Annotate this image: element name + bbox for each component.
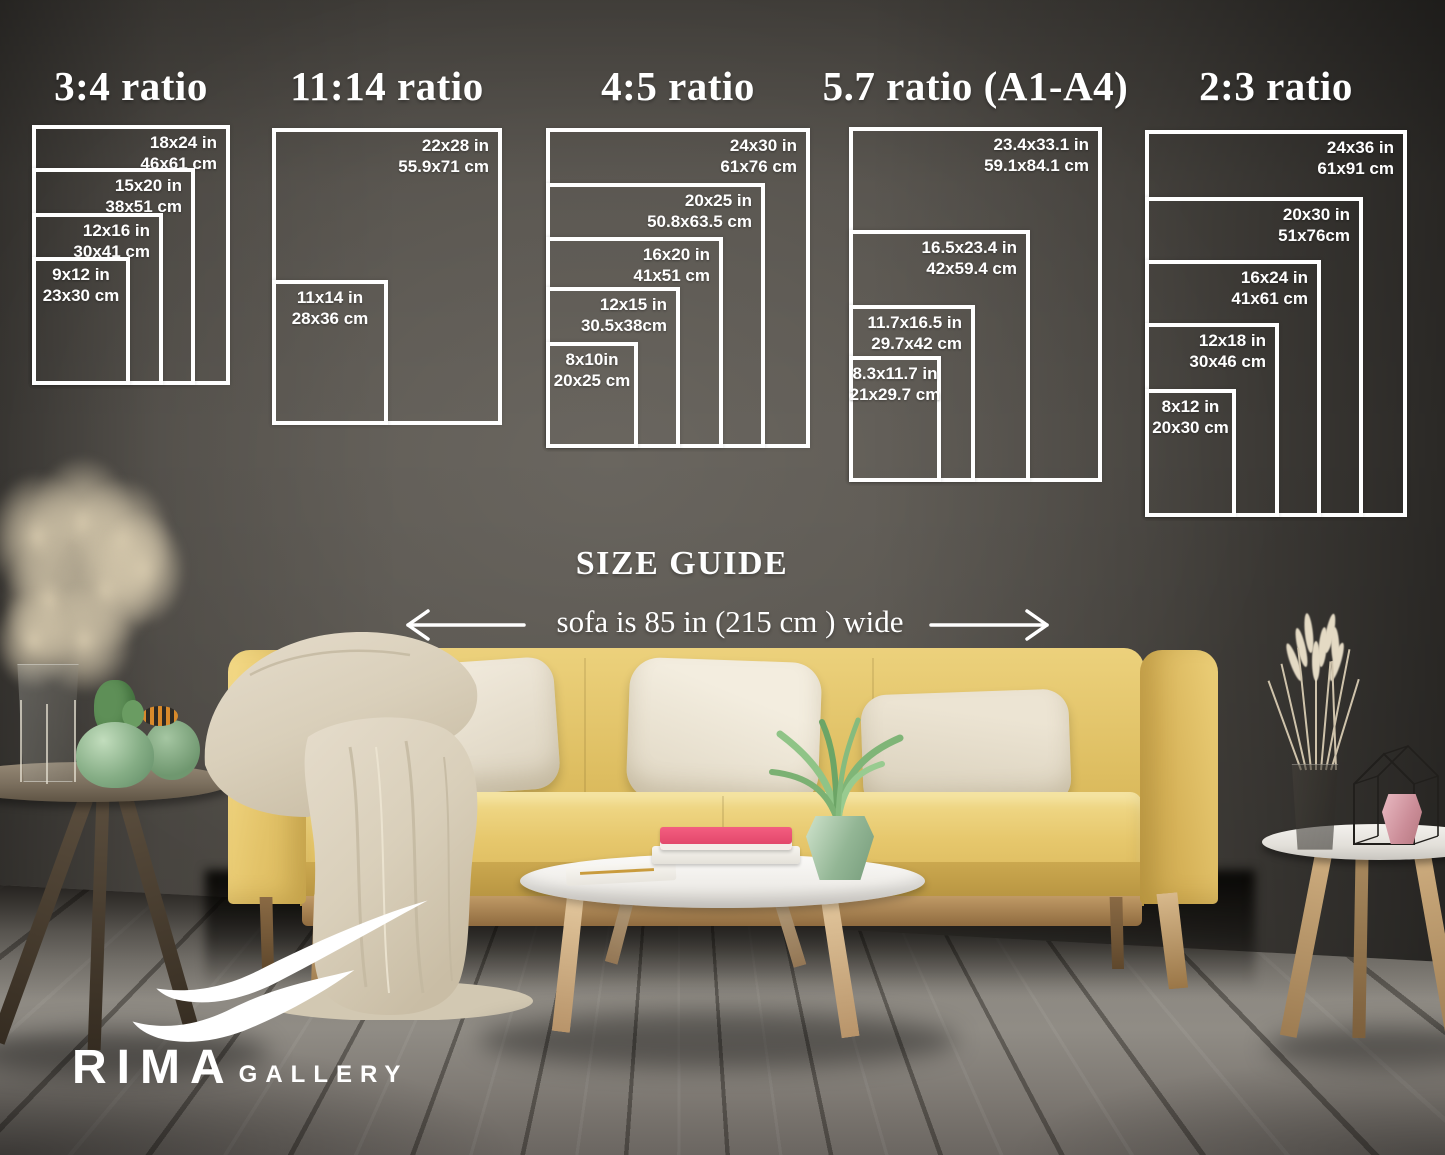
rima-swoosh-icon xyxy=(95,895,445,1060)
arrow-left-icon xyxy=(402,607,527,643)
size-label: 20x25 in50.8x63.5 cm xyxy=(647,190,752,232)
size-label: 8x12 in20x30 cm xyxy=(1152,396,1229,438)
size-rect: 9x12 in23x30 cm xyxy=(32,257,130,385)
size-label: 12x16 in30x41 cm xyxy=(73,220,150,262)
logo-suffix-text: GALLERY xyxy=(239,1063,409,1087)
size-rect: 11x14 in28x36 cm xyxy=(272,280,388,425)
size-label: 11x14 in28x36 cm xyxy=(292,287,369,329)
size-label: 16x24 in41x61 cm xyxy=(1231,267,1308,309)
size-label: 12x18 in30x46 cm xyxy=(1189,330,1266,372)
size-label: 16x20 in41x51 cm xyxy=(633,244,710,286)
size-rect: 8.3x11.7 in21x29.7 cm xyxy=(849,356,941,482)
size-guide-poster: 18x24 in46x61 cm15x20 in38x51 cm12x16 in… xyxy=(0,0,1445,1155)
size-group-ratio-5-7: 23.4x33.1 in59.1x84.1 cm16.5x23.4 in42x5… xyxy=(849,127,1102,482)
size-group-title: 5.7 ratio (A1-A4) xyxy=(823,62,1129,110)
sofa-width-note: sofa is 85 in (215 cm ) wide xyxy=(557,604,904,640)
size-group-title: 2:3 ratio xyxy=(1199,62,1353,110)
size-label: 22x28 in55.9x71 cm xyxy=(398,135,489,177)
size-label: 9x12 in23x30 cm xyxy=(43,264,120,306)
size-label: 24x30 in61x76 cm xyxy=(720,135,797,177)
size-label: 16.5x23.4 in42x59.4 cm xyxy=(922,237,1017,279)
size-guide-heading: SIZE GUIDE xyxy=(576,545,788,583)
size-label: 24x36 in61x91 cm xyxy=(1317,137,1394,179)
size-group-ratio-4-5: 24x30 in61x76 cm20x25 in50.8x63.5 cm16x2… xyxy=(546,128,810,448)
size-label: 15x20 in38x51 cm xyxy=(105,175,182,217)
size-group-ratio-2-3: 24x36 in61x91 cm20x30 in51x76cm16x24 in4… xyxy=(1145,130,1407,517)
size-label: 20x30 in51x76cm xyxy=(1278,204,1350,246)
size-label: 23.4x33.1 in59.1x84.1 cm xyxy=(984,134,1089,176)
size-label: 11.7x16.5 in29.7x42 cm xyxy=(867,312,962,354)
size-group-title: 11:14 ratio xyxy=(290,62,483,110)
size-label: 8x10in20x25 cm xyxy=(554,349,631,391)
size-group-ratio-3-4: 18x24 in46x61 cm15x20 in38x51 cm12x16 in… xyxy=(32,125,230,385)
size-group-title: 3:4 ratio xyxy=(54,62,208,110)
size-rect: 8x10in20x25 cm xyxy=(546,342,638,448)
size-label: 12x15 in30.5x38cm xyxy=(581,294,667,336)
arrow-right-icon xyxy=(928,607,1053,643)
size-group-title: 4:5 ratio xyxy=(601,62,755,110)
size-rect: 8x12 in20x30 cm xyxy=(1145,389,1236,517)
size-label: 8.3x11.7 in21x29.7 cm xyxy=(850,363,941,405)
logo-brand-text: RIMA xyxy=(72,1044,235,1092)
size-group-ratio-11-14: 22x28 in55.9x71 cm11x14 in28x36 cm xyxy=(272,128,502,425)
